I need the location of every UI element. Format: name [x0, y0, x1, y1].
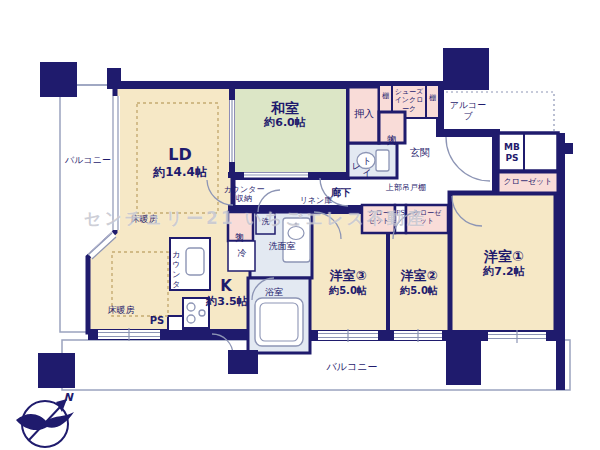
floorplan-image: バルコニー バルコニー LD 約14.4帖 和室 約6.0帖 K 約3.5帖 洋…	[0, 0, 600, 450]
room-yoshitsu2-size: 約5.0帖	[391, 285, 447, 297]
pillar-top-right	[443, 48, 489, 90]
wall-alcove-bottom	[436, 129, 500, 137]
shoes-cloak-label: シューズインクローク	[393, 88, 425, 113]
shelf-left-label: 棚	[381, 92, 390, 100]
counter-storage-label: カウンター収納	[222, 185, 266, 204]
door-arc-entrance	[446, 137, 490, 181]
bathtub-icon	[255, 298, 303, 346]
bathroom-label: 浴室	[260, 287, 288, 298]
room-washitsu	[233, 85, 348, 178]
shelf-right-label: 棚	[428, 94, 437, 102]
kitchen-sink-icon	[186, 248, 204, 275]
oshiire-label: 押入	[349, 108, 379, 120]
upper-cabinet-label: 上部吊戸棚	[380, 183, 432, 192]
mbps-label: MB PS	[501, 142, 523, 163]
wall-right-nub	[565, 143, 573, 154]
counter-label: カウンター	[171, 241, 180, 291]
toilet-label: トイレ	[351, 146, 372, 178]
pillar-bottom-center	[228, 350, 258, 374]
room-kitchen-name: K	[214, 278, 238, 296]
room-ld-name: LD	[140, 146, 220, 165]
room-yoshitsu1-name: 洋室①	[472, 248, 536, 265]
room-yoshitsu2-name: 洋室②	[391, 268, 447, 283]
room-kitchen-size: 約3.5帖	[200, 296, 254, 309]
ps-bottom-label: PS	[146, 315, 168, 327]
room-yoshitsu1-size: 約7.2帖	[474, 266, 534, 279]
alcove-label: アルコーブ	[446, 100, 490, 121]
storage-top-label: 物入	[386, 115, 397, 141]
compass-north-label: N	[60, 392, 76, 405]
room-washitsu-size: 約6.0帖	[252, 117, 318, 130]
room-yoshitsu3-name: 洋室③	[320, 268, 376, 283]
watermark-text: センチュリー21 いちごエレス不動産	[84, 207, 504, 230]
pillar-top-left	[40, 62, 77, 97]
floor-heating-dining-label: 床暖房	[101, 305, 141, 316]
bottom-balcony	[62, 340, 570, 390]
balcony-left-label: バルコニー	[63, 155, 113, 166]
compass-icon	[16, 399, 74, 447]
balcony-bottom-label: バルコニー	[320, 361, 384, 373]
fridge-label: 冷	[235, 248, 249, 259]
pillar-bottom-left	[38, 353, 75, 388]
linen-label: リネン庫	[298, 196, 334, 205]
genkan-label: 玄関	[404, 147, 436, 159]
wall-top-stub	[107, 68, 121, 89]
closet-main-label: クローゼット	[501, 177, 555, 186]
ps-bottom-box	[168, 316, 183, 331]
room-yoshitsu3-size: 約5.0帖	[320, 285, 376, 297]
washroom-label: 洗面室	[262, 241, 302, 252]
room-ld-size: 約14.4帖	[140, 165, 220, 179]
room-washitsu-name: 和室	[252, 100, 318, 117]
pillar-bottom-right	[446, 340, 481, 385]
